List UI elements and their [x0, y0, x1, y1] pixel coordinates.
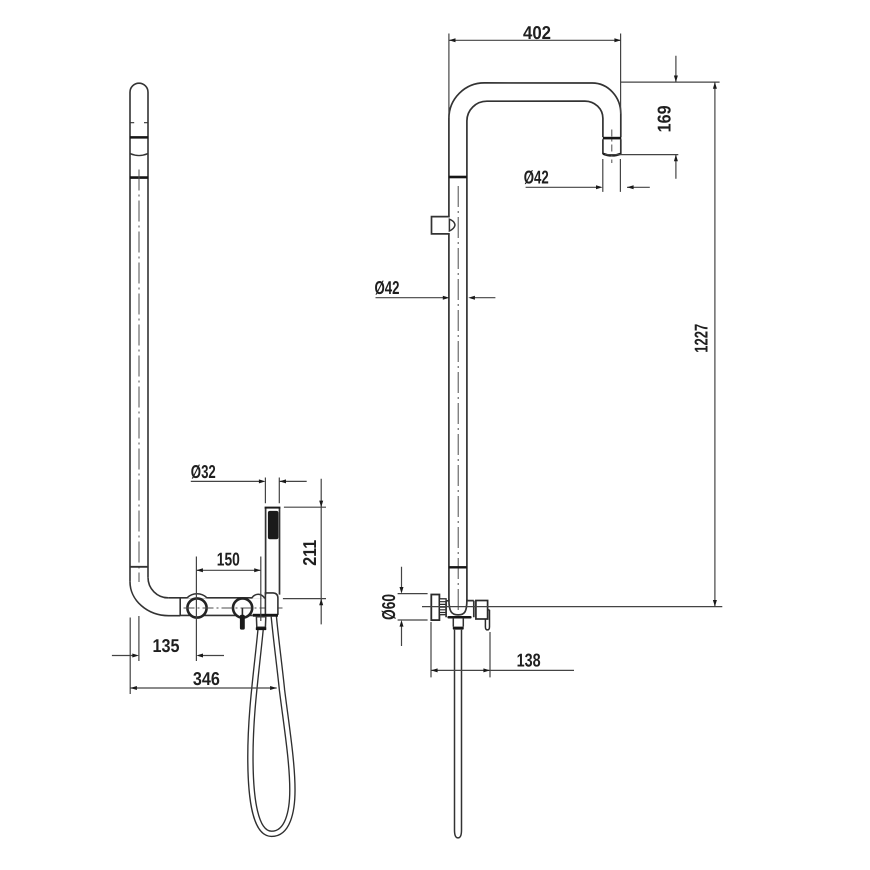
svg-text:Ø32: Ø32: [191, 461, 216, 482]
svg-text:346: 346: [193, 668, 220, 689]
svg-text:Ø42: Ø42: [524, 166, 549, 187]
svg-text:Ø60: Ø60: [378, 594, 399, 620]
svg-text:402: 402: [523, 22, 551, 43]
svg-text:150: 150: [217, 549, 240, 570]
svg-text:Ø42: Ø42: [375, 277, 400, 298]
svg-text:135: 135: [153, 635, 180, 656]
svg-text:169: 169: [654, 105, 675, 132]
svg-text:138: 138: [517, 650, 541, 671]
svg-text:1227: 1227: [691, 324, 712, 353]
svg-text:211: 211: [299, 540, 320, 566]
